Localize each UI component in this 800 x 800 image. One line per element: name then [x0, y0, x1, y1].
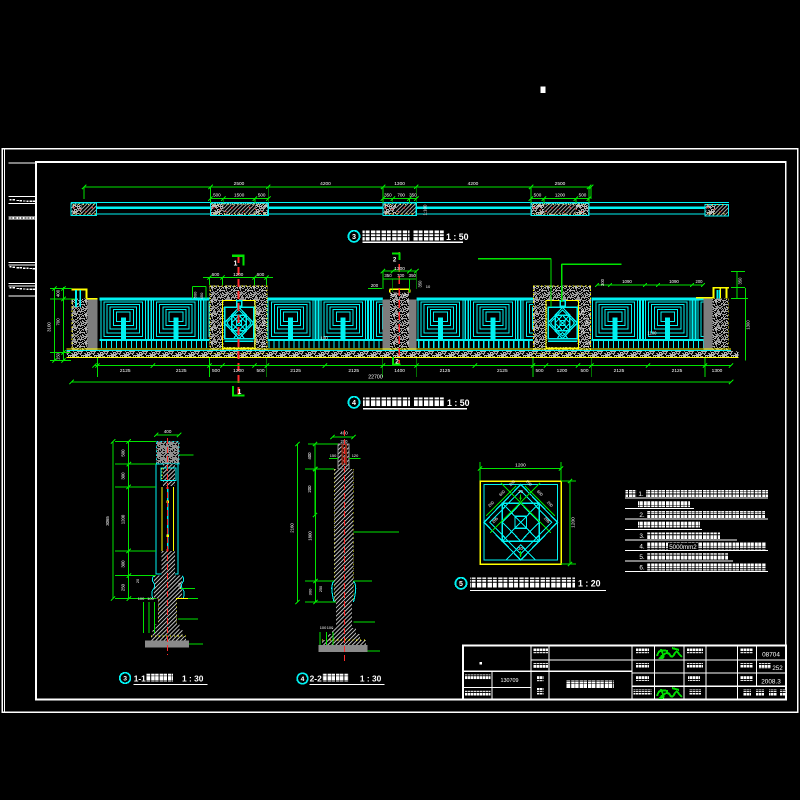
svg-text:400: 400 [56, 289, 61, 297]
svg-text:150: 150 [56, 352, 61, 360]
svg-text:450: 450 [257, 308, 262, 316]
svg-text:2500: 2500 [555, 181, 566, 187]
svg-text:5000mm2: 5000mm2 [669, 544, 697, 551]
svg-text:1200: 1200 [233, 368, 244, 374]
svg-text:1: 1 [238, 389, 242, 396]
svg-text:3065: 3065 [105, 516, 110, 526]
svg-text:2125: 2125 [614, 368, 625, 374]
svg-text:1200: 1200 [557, 368, 568, 374]
svg-text:2125: 2125 [290, 368, 301, 374]
svg-text:1100: 1100 [647, 331, 657, 336]
svg-text:20: 20 [518, 489, 523, 494]
svg-text:350: 350 [409, 193, 417, 198]
svg-text:1200: 1200 [555, 193, 566, 198]
svg-text:10: 10 [426, 284, 431, 289]
svg-text:1200: 1200 [121, 514, 126, 524]
svg-text:1500: 1500 [234, 193, 245, 198]
svg-text:350: 350 [738, 277, 743, 285]
svg-text:4: 4 [301, 676, 305, 683]
svg-text:200: 200 [307, 485, 312, 493]
svg-text:250: 250 [319, 586, 323, 592]
svg-text:300: 300 [121, 472, 126, 480]
svg-text:150: 150 [177, 582, 182, 589]
svg-text:1400: 1400 [394, 368, 405, 374]
svg-text:500: 500 [121, 449, 126, 457]
svg-text:600: 600 [212, 272, 220, 277]
svg-text:1050: 1050 [585, 317, 590, 327]
svg-text:2125: 2125 [497, 368, 508, 374]
svg-text:1 : 30: 1 : 30 [360, 673, 382, 683]
svg-text:700: 700 [397, 193, 405, 198]
svg-text:300: 300 [308, 588, 313, 595]
svg-text:100: 100 [147, 596, 154, 601]
svg-text:1 : 20: 1 : 20 [578, 579, 601, 589]
svg-text:1200: 1200 [515, 463, 526, 469]
svg-text:350: 350 [384, 273, 392, 278]
svg-text:2500: 2500 [234, 181, 245, 187]
svg-text:350: 350 [409, 273, 417, 278]
svg-text:500: 500 [258, 193, 266, 198]
svg-text:2125: 2125 [176, 368, 187, 374]
svg-text:2160: 2160 [290, 523, 295, 533]
svg-text:250: 250 [580, 327, 585, 335]
svg-text:140: 140 [401, 294, 407, 298]
svg-text:4200: 4200 [468, 181, 479, 187]
svg-text:700: 700 [56, 318, 61, 326]
svg-text:20: 20 [518, 546, 523, 551]
svg-text:100: 100 [320, 336, 328, 341]
svg-text:500: 500 [535, 368, 543, 374]
svg-text:1: 1 [234, 261, 238, 268]
svg-text:100: 100 [138, 596, 145, 601]
svg-text:500: 500 [580, 368, 588, 374]
svg-text:4: 4 [352, 398, 356, 407]
svg-text:100: 100 [327, 625, 334, 630]
svg-text:4200: 4200 [320, 181, 331, 187]
svg-text:350: 350 [418, 280, 423, 288]
svg-text:4.: 4. [639, 544, 645, 551]
svg-text:2125: 2125 [348, 368, 359, 374]
svg-text:1-1: 1-1 [134, 673, 146, 683]
svg-text:2: 2 [395, 359, 399, 366]
svg-text:1200: 1200 [571, 517, 577, 528]
svg-text:22700: 22700 [368, 375, 383, 381]
svg-text:2008.3: 2008.3 [761, 679, 781, 686]
svg-text:500: 500 [256, 368, 264, 374]
svg-text:1 : 30: 1 : 30 [182, 673, 204, 683]
svg-text:2.: 2. [639, 512, 645, 519]
svg-text:600: 600 [257, 272, 265, 277]
svg-text:610: 610 [391, 294, 397, 298]
svg-text:3: 3 [123, 676, 127, 683]
svg-text:2: 2 [393, 257, 397, 264]
svg-text:3: 3 [352, 232, 356, 241]
svg-text:130709: 130709 [501, 678, 519, 684]
svg-text:1300: 1300 [746, 320, 751, 330]
svg-text:400: 400 [164, 429, 172, 434]
svg-text:1 : 50: 1 : 50 [446, 232, 469, 242]
svg-text:5.: 5. [639, 554, 645, 561]
svg-text:150: 150 [585, 340, 590, 348]
svg-text:500: 500 [213, 193, 221, 198]
svg-text:120: 120 [352, 453, 359, 458]
svg-text:1 : 50: 1 : 50 [447, 398, 470, 408]
svg-text:150: 150 [261, 340, 266, 348]
svg-text:500: 500 [212, 368, 220, 374]
svg-text:08704: 08704 [762, 652, 780, 659]
svg-text:1:100: 1:100 [423, 204, 428, 216]
svg-text:200: 200 [371, 283, 379, 288]
svg-text:250: 250 [121, 583, 126, 591]
svg-text:500: 500 [579, 193, 587, 198]
svg-text:450: 450 [580, 308, 585, 316]
svg-text:20: 20 [136, 579, 140, 583]
svg-text:1200: 1200 [233, 272, 244, 277]
svg-text:3.: 3. [639, 533, 645, 540]
svg-text:252: 252 [772, 665, 783, 672]
svg-text:2125: 2125 [672, 368, 683, 374]
svg-text:250: 250 [257, 327, 262, 335]
svg-text:500: 500 [534, 193, 542, 198]
svg-text:150: 150 [330, 453, 337, 458]
svg-text:5: 5 [459, 581, 463, 588]
svg-text:1090: 1090 [669, 279, 679, 284]
svg-text:3100: 3100 [47, 322, 52, 332]
svg-text:350: 350 [384, 193, 392, 198]
svg-text:400: 400 [307, 452, 312, 460]
svg-text:1050: 1050 [261, 317, 266, 327]
svg-text:1.: 1. [638, 491, 644, 498]
svg-text:2125: 2125 [440, 368, 451, 374]
svg-text:2-2: 2-2 [310, 673, 322, 683]
svg-text:600: 600 [193, 291, 198, 298]
svg-text:450: 450 [199, 292, 204, 299]
svg-text:200: 200 [696, 279, 704, 284]
svg-text:1300: 1300 [712, 368, 723, 374]
svg-text:700: 700 [397, 273, 405, 278]
svg-text:300: 300 [600, 278, 605, 286]
svg-text:300: 300 [121, 560, 126, 568]
svg-text:2125: 2125 [120, 368, 131, 374]
svg-text:1300: 1300 [394, 181, 405, 187]
svg-text:6.: 6. [639, 565, 645, 572]
svg-text:1090: 1090 [622, 279, 632, 284]
svg-text:1800: 1800 [308, 531, 313, 541]
